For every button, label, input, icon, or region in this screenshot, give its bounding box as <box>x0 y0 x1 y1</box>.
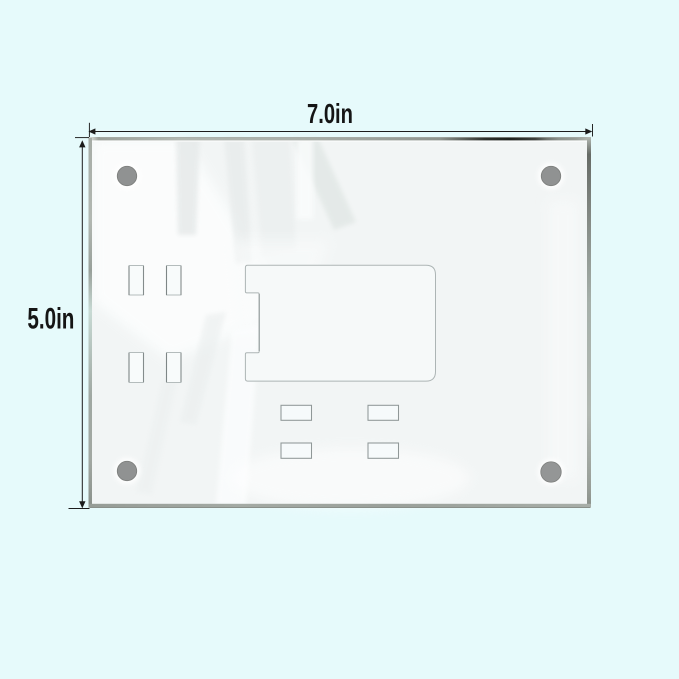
svg-text:5.0in: 5.0in <box>27 303 74 335</box>
svg-text:7.0in: 7.0in <box>307 99 353 130</box>
